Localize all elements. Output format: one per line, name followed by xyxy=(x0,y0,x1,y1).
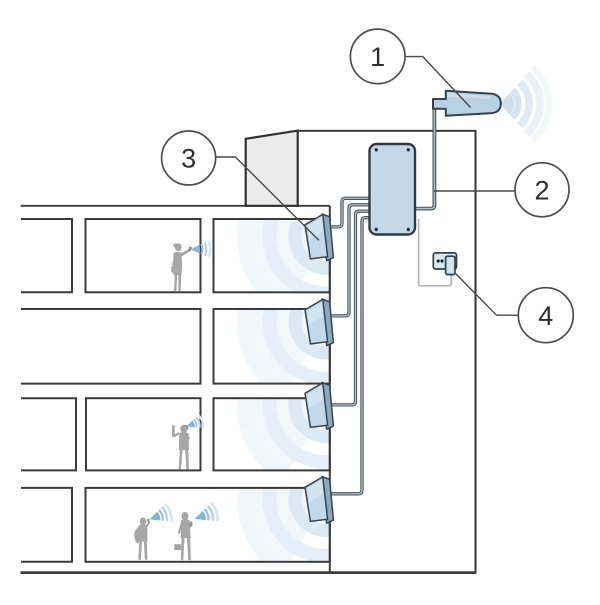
svg-text:4: 4 xyxy=(538,301,553,331)
svg-text:3: 3 xyxy=(181,144,196,174)
svg-text:2: 2 xyxy=(534,175,549,205)
svg-text:1: 1 xyxy=(370,42,385,72)
